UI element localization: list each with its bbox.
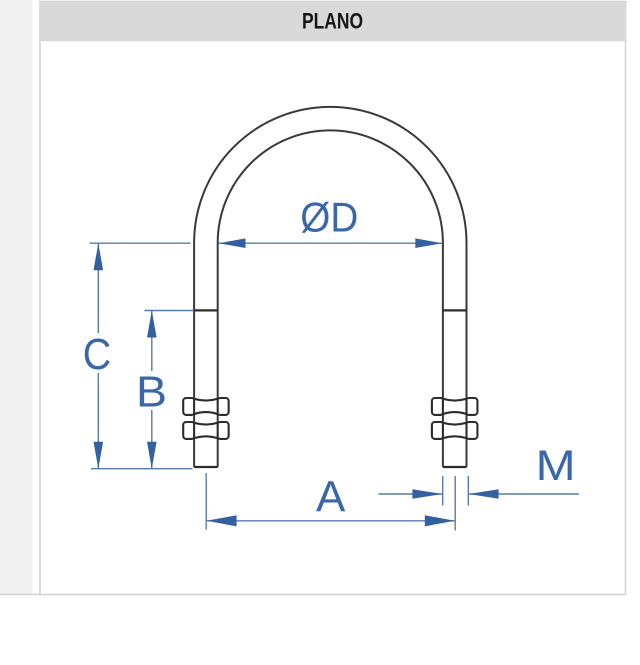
- svg-text:A: A: [316, 473, 346, 522]
- svg-text:ØD: ØD: [300, 194, 358, 241]
- svg-text:C: C: [83, 330, 112, 379]
- svg-text:M: M: [536, 442, 576, 490]
- svg-text:PLANO: PLANO: [302, 9, 363, 34]
- svg-text:B: B: [136, 368, 167, 417]
